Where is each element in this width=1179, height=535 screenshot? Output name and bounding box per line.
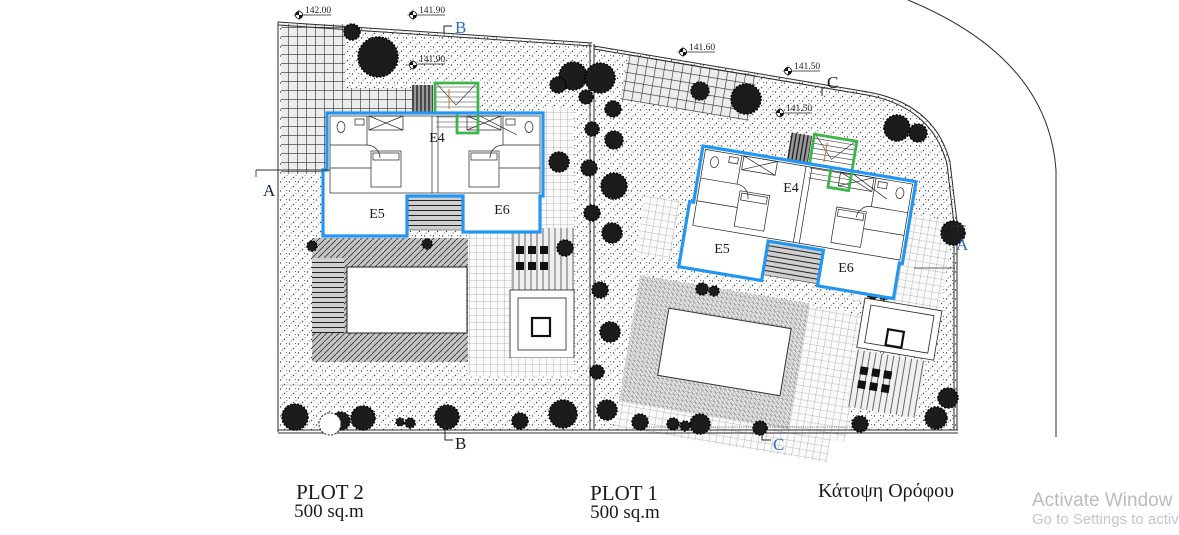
section-marker-c-top: C: [827, 73, 838, 92]
garden-structure: [510, 290, 574, 376]
plot2-area-label: 500 sq.m: [294, 501, 364, 522]
drawing-title: Κάτοψη Ορόφου: [818, 480, 954, 502]
captions: PLOT 2 500 sq.m PLOT 1 500 sq.m: [294, 480, 660, 523]
activate-windows-watermark: Activate Window Go to Settings to activ: [1032, 490, 1179, 528]
plot1-area-label: 500 sq.m: [590, 502, 660, 523]
site-plan-drawing: 142.00 141.90 141.90 141.60 141.50 141.5…: [0, 0, 1179, 535]
section-marker-b-top: B: [455, 18, 466, 37]
pool: [347, 267, 467, 333]
unit-label-e6-right: E6: [838, 261, 854, 276]
tree: [319, 413, 341, 435]
level-value: 141.50: [794, 62, 820, 72]
unit-label-e5-right: E5: [714, 242, 730, 257]
unit-label-e6-left: E6: [494, 203, 510, 218]
section-marker-b-bottom: B: [455, 434, 466, 453]
unit-label-e5-left: E5: [369, 207, 385, 222]
section-marker-a-left: A: [263, 181, 276, 200]
site-plan-page: 142.00 141.90 141.90 141.60 141.50 141.5…: [0, 0, 1179, 535]
level-value: 141.60: [689, 43, 715, 53]
watermark-line1: Activate Window: [1032, 490, 1173, 511]
level-value: 141.90: [419, 6, 445, 16]
level-value: 142.00: [305, 6, 331, 16]
section-marker-c-bottom: C: [773, 435, 784, 454]
section-marker-a-right: A: [956, 235, 969, 254]
level-value: 141.90: [419, 55, 445, 65]
level-value: 141.50: [786, 104, 812, 114]
unit-label-e4-left: E4: [429, 131, 445, 146]
unit-label-e4-right: E4: [783, 181, 799, 196]
watermark-line2: Go to Settings to activ: [1032, 511, 1179, 528]
